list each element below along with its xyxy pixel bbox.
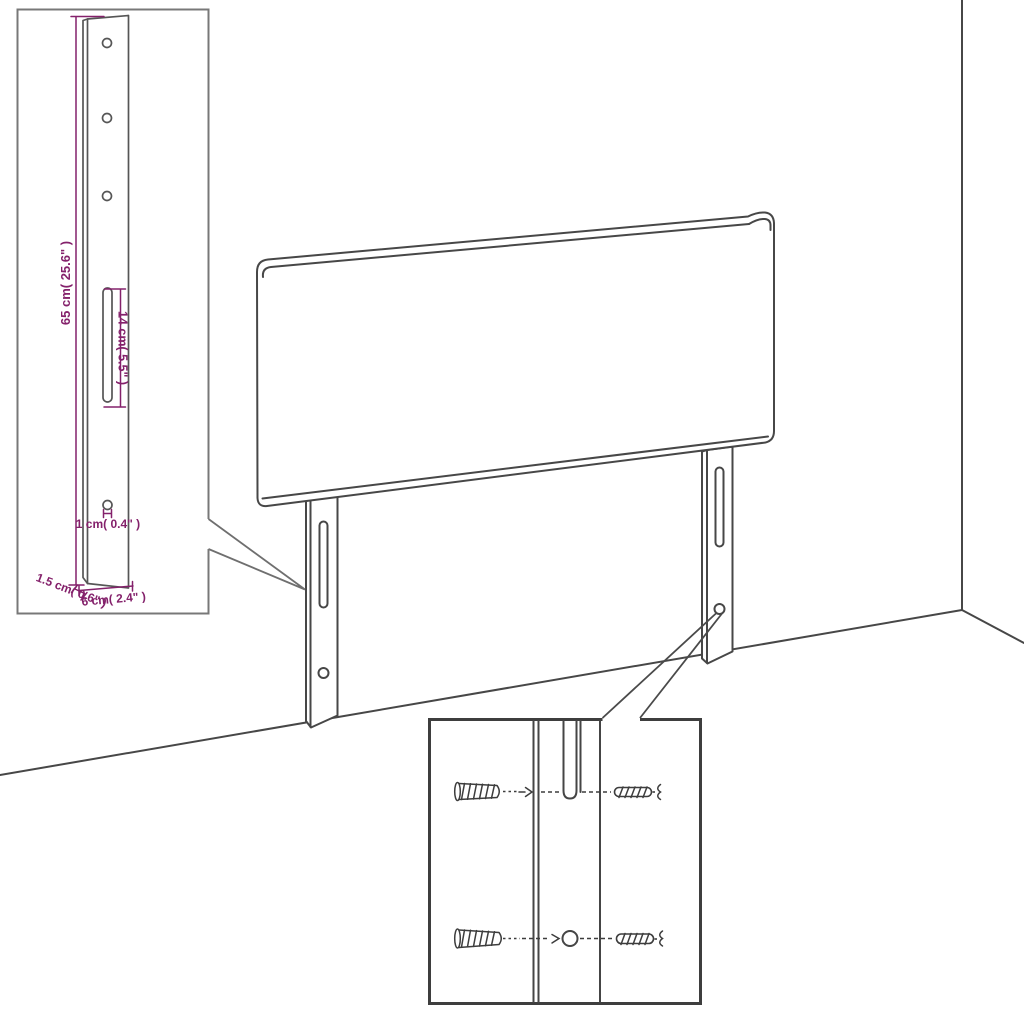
headboard-diagram: 65 cm( 25.6" ) 14 cm( 5.5" ) 1 cm( 0.4" …	[0, 0, 1024, 1024]
floor-line-right	[962, 610, 1024, 643]
inset-leg-hole-3	[103, 192, 112, 201]
inset-leg-small-hole	[103, 501, 112, 510]
headboard-panel	[257, 212, 774, 506]
left-leg-hole	[319, 668, 329, 678]
product-diagram-canvas: 65 cm( 25.6" ) 14 cm( 5.5" ) 1 cm( 0.4" …	[0, 0, 1024, 1024]
inset-leg-slot	[103, 288, 112, 402]
dim-label-14cm: 14 cm( 5.5" )	[116, 311, 130, 385]
inset-callout-wedge	[209, 519, 306, 590]
left-leg	[306, 496, 338, 728]
left-leg-slot	[320, 522, 328, 608]
right-leg	[702, 447, 733, 664]
detail-hole	[563, 931, 578, 946]
mounting-detail-inset-box	[430, 720, 701, 1004]
inset-leg-drawing	[83, 16, 129, 589]
dim-label-65cm: 65 cm( 25.6" )	[58, 241, 73, 325]
inset-leg-hole-2	[103, 114, 112, 123]
headboard-outline	[257, 212, 774, 506]
mounting-detail-inset	[430, 613, 723, 1004]
inset-leg-hole-1	[103, 39, 112, 48]
dim-label-1cm: 1 cm( 0.4" )	[76, 517, 140, 531]
right-leg-slot	[716, 468, 724, 547]
